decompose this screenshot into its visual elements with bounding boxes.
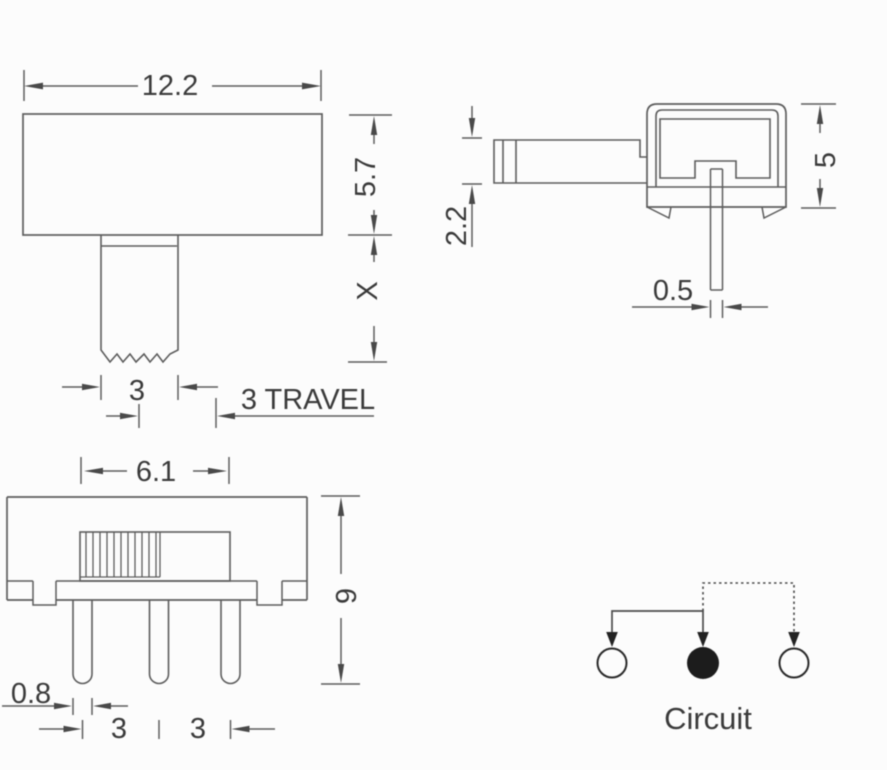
- svg-text:5.7: 5.7: [350, 157, 382, 197]
- svg-text:5: 5: [810, 152, 842, 168]
- svg-text:6.1: 6.1: [136, 456, 176, 488]
- svg-text:12.2: 12.2: [142, 70, 198, 102]
- svg-text:X: X: [352, 281, 384, 300]
- svg-text:3 TRAVEL: 3 TRAVEL: [241, 384, 375, 416]
- svg-text:Circuit: Circuit: [664, 701, 752, 736]
- svg-text:3: 3: [190, 713, 206, 745]
- svg-text:0.5: 0.5: [653, 275, 693, 307]
- svg-text:9: 9: [331, 588, 363, 604]
- svg-text:0.8: 0.8: [11, 678, 51, 710]
- svg-text:2.2: 2.2: [441, 206, 473, 246]
- svg-text:3: 3: [111, 713, 127, 745]
- svg-text:3: 3: [129, 375, 145, 407]
